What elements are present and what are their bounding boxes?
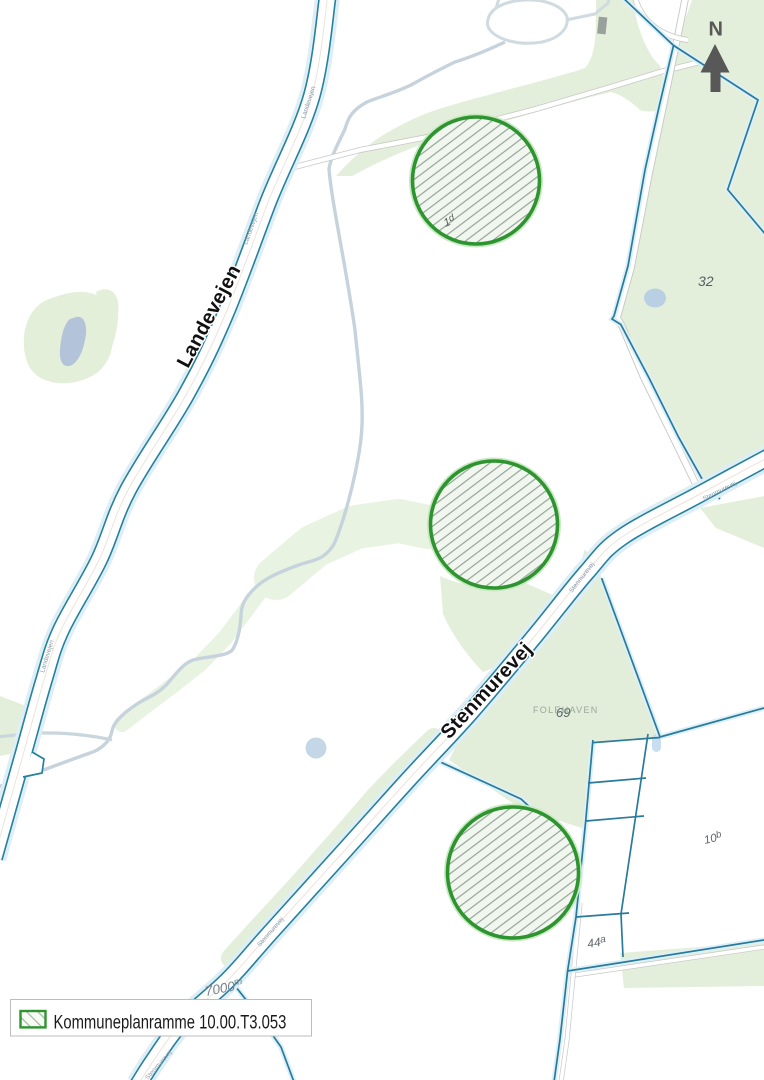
svg-text:32: 32 bbox=[698, 273, 714, 289]
svg-text:N: N bbox=[709, 19, 723, 41]
svg-text:FOLEHAVEN: FOLEHAVEN bbox=[533, 705, 599, 715]
svg-text:Kommuneplanramme 10.00.T3.053: Kommuneplanramme 10.00.T3.053 bbox=[54, 1012, 287, 1033]
